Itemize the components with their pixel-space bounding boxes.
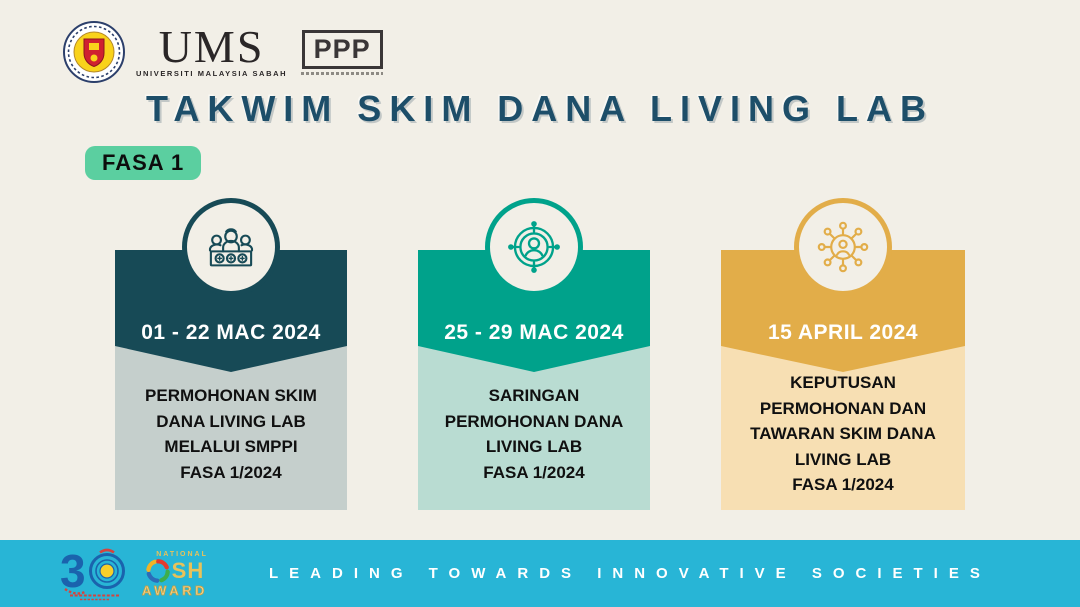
ppp-label: PPP (302, 30, 383, 69)
ppp-logo: PPP (301, 30, 383, 75)
committee-people-icon (203, 219, 259, 275)
card-icon-circle (182, 198, 280, 296)
timeline-cards: 01 - 22 MAC 2024 PERMOHONAN SKIM DANA LI… (0, 198, 1080, 510)
ums-subtitle: UNIVERSITI MALAYSIA SABAH (136, 69, 287, 78)
ums-crest-icon (62, 20, 126, 84)
ums-wordmark: UMS UNIVERSITI MALAYSIA SABAH (136, 26, 287, 78)
osh-award-text: AWARD (142, 584, 208, 597)
page-title: TAKWIM SKIM DANA LIVING LAB (0, 88, 1080, 130)
footer-slogan: LEADING TOWARDS INNOVATIVE SOCIETIES (208, 565, 1038, 582)
card-permohonan: 01 - 22 MAC 2024 PERMOHONAN SKIM DANA LI… (115, 198, 347, 510)
footer-bar: 3 NATIONAL (0, 540, 1080, 607)
osh-national-text: NATIONAL (156, 551, 208, 558)
target-person-icon (505, 218, 563, 276)
ums-30th-anniversary-icon: 3 (58, 547, 130, 601)
card-description: PERMOHONAN SKIM DANA LIVING LAB MELALUI … (145, 383, 317, 485)
card-saringan: 25 - 29 MAC 2024 SARINGAN PERMOHONAN DAN… (418, 198, 650, 510)
phase-badge: FASA 1 (85, 146, 201, 180)
poster: UMS UNIVERSITI MALAYSIA SABAH PPP TAKWIM… (0, 0, 1080, 607)
header-logos: UMS UNIVERSITI MALAYSIA SABAH PPP (62, 20, 383, 84)
svg-text:3: 3 (60, 547, 86, 597)
ppp-caption-text (301, 72, 383, 75)
ums-text: UMS (159, 26, 265, 68)
card-description: SARINGAN PERMOHONAN DANA LIVING LAB FASA… (445, 383, 624, 485)
card-icon-circle (794, 198, 892, 296)
card-keputusan: 15 APRIL 2024 KEPUTUSAN PERMOHONAN DAN T… (721, 198, 965, 510)
footer-logos: 3 NATIONAL (58, 547, 208, 601)
card-description: KEPUTUSAN PERMOHONAN DAN TAWARAN SKIM DA… (750, 370, 936, 498)
card-icon-circle (485, 198, 583, 296)
osh-swoosh-icon (146, 559, 170, 583)
network-person-icon (814, 218, 872, 276)
osh-sh-text: SH (172, 560, 205, 582)
national-osh-award-logo: NATIONAL SH (142, 551, 208, 597)
